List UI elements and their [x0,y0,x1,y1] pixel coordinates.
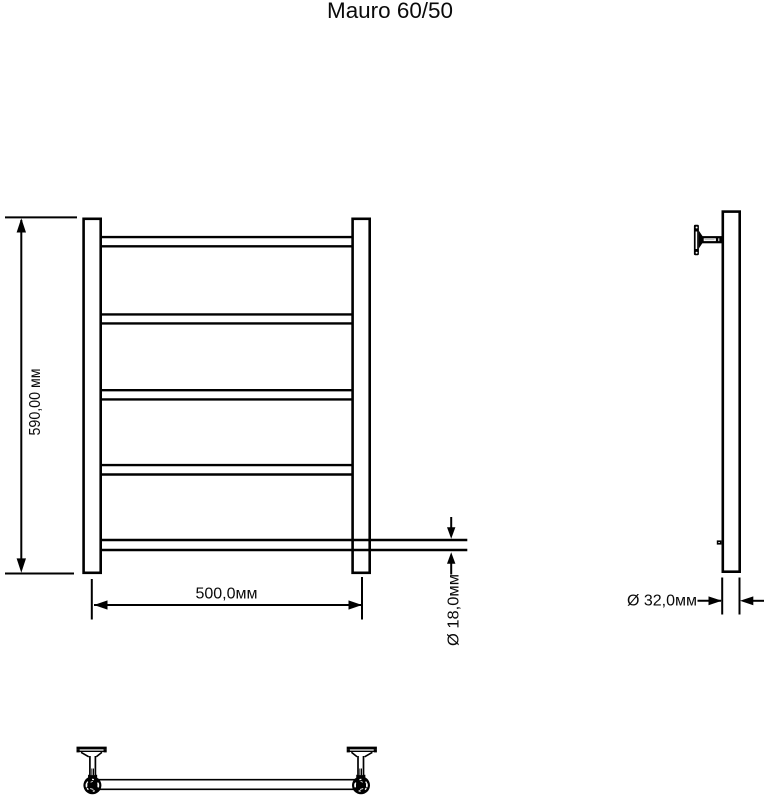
svg-text:500,0мм: 500,0мм [195,586,257,603]
svg-text:Ø 18,0мм: Ø 18,0мм [446,574,463,646]
svg-text:Ø 32,0мм: Ø 32,0мм [627,592,697,609]
svg-text:Mauro 60/50: Mauro 60/50 [327,0,453,23]
svg-text:590,00 мм: 590,00 мм [27,369,44,436]
